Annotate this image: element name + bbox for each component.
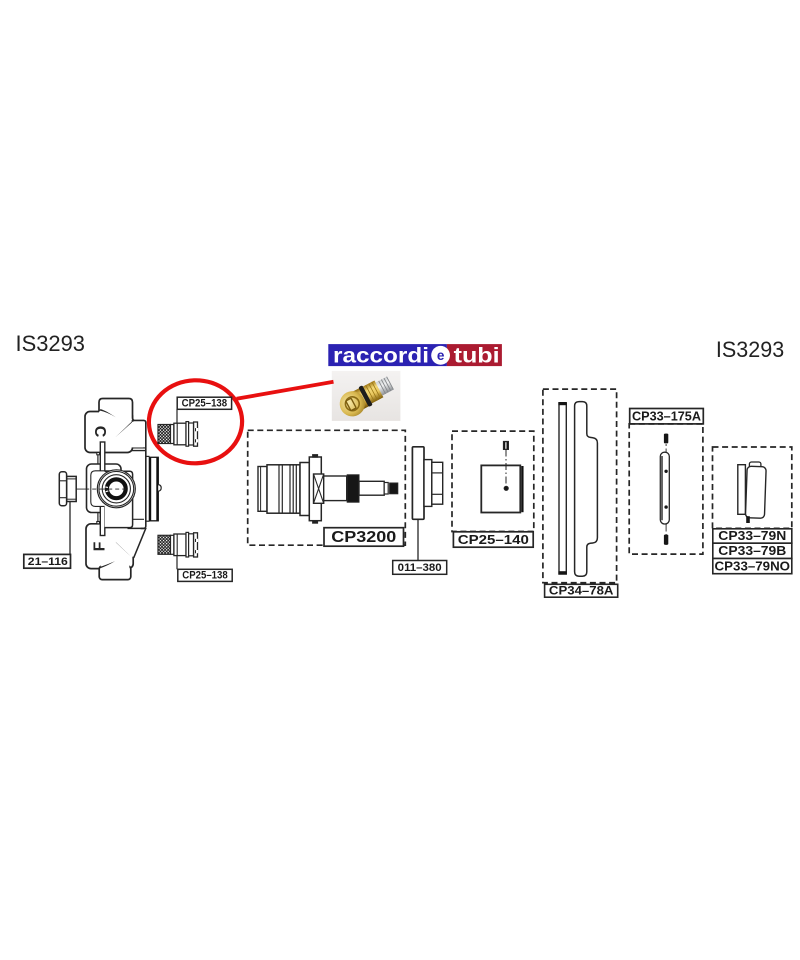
svg-text:e: e [437,348,445,363]
svg-text:CP33–79NO: CP33–79NO [715,558,791,573]
svg-text:011–380: 011–380 [398,562,442,574]
svg-text:F: F [92,541,109,551]
svg-text:CP25–140: CP25–140 [458,532,529,547]
svg-text:CP33–79N: CP33–79N [718,528,786,543]
svg-text:CP33–79B: CP33–79B [718,543,786,558]
svg-text:IS3293: IS3293 [16,331,86,356]
svg-text:raccordi: raccordi [333,344,429,367]
svg-text:CP25–138: CP25–138 [182,398,228,410]
svg-text:C: C [91,426,108,438]
svg-text:21–116: 21–116 [28,556,68,568]
svg-text:tubi: tubi [454,344,500,367]
svg-text:CP33–175A: CP33–175A [632,408,701,423]
svg-text:CP25–138: CP25–138 [182,570,228,582]
svg-text:CP3200: CP3200 [331,529,396,546]
svg-text:IS3293: IS3293 [716,337,784,362]
svg-text:CP34–78A: CP34–78A [549,584,614,598]
